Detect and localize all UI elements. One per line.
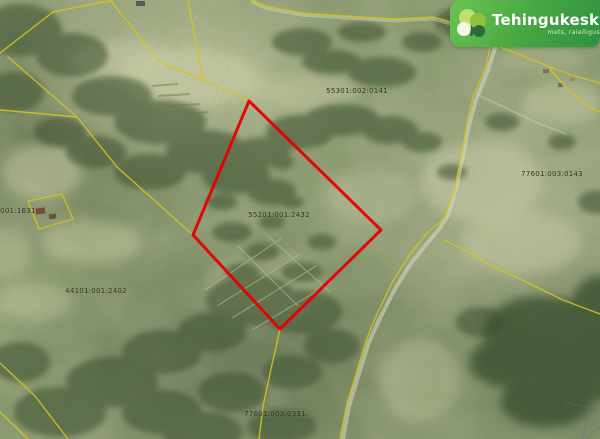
aerial-imagery — [0, 0, 600, 439]
logo-name: Tehingukeskus — [492, 12, 600, 28]
parcel-label: 77601:003:0143 — [521, 170, 583, 178]
map-layers — [0, 0, 600, 439]
tehingukeskus-logo: Tehingukeskus mets, raieõigus, põld — [450, 0, 600, 47]
tehingukeskus-tree-icon — [456, 6, 490, 42]
parcel-label: 55301:002:0141 — [326, 87, 388, 95]
logo-tagline: mets, raieõigus, põld — [548, 29, 600, 36]
map-canvas[interactable]: 55301:002:0141 77601:003:0143 55201:001:… — [0, 0, 600, 439]
parcel-label: 44101:001:2402 — [65, 287, 127, 295]
parcel-label: 77601:003:0331 — [244, 410, 306, 418]
selected-parcel-label: 55201:001:2432 — [248, 211, 310, 219]
parcel-label: 55201:001:1631 — [0, 207, 36, 215]
